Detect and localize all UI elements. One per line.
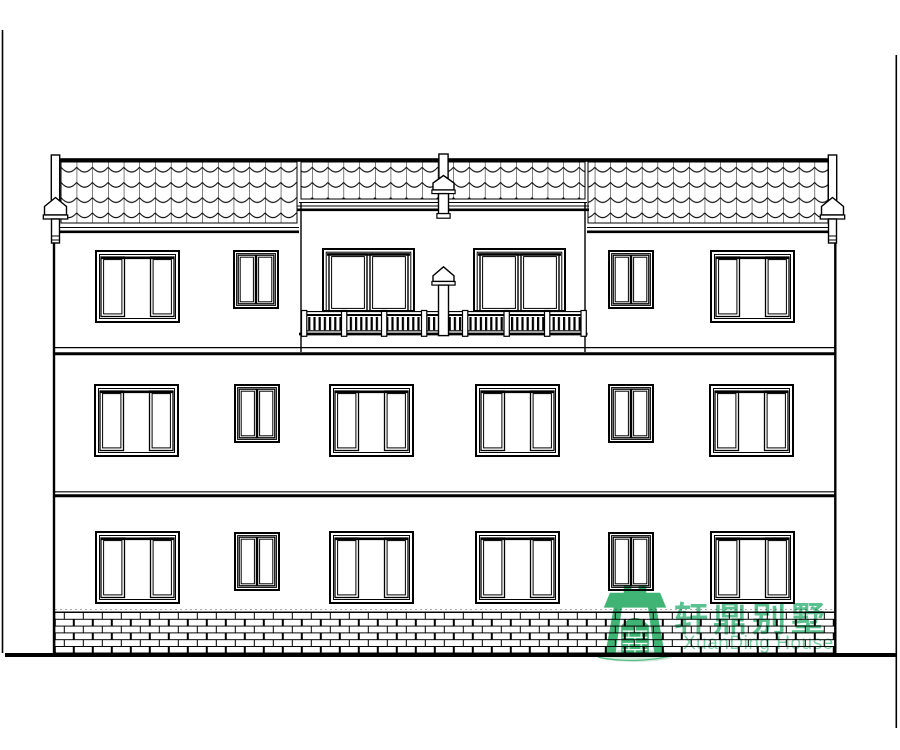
windows-floor-1 — [96, 532, 794, 603]
window-2f-right-small — [609, 385, 653, 442]
plinth-brick-hatch — [55, 612, 836, 653]
roof-tiles-left — [61, 162, 297, 223]
ground-line — [5, 653, 896, 657]
window-3f-right-large — [711, 251, 794, 322]
window-1f-center-right — [476, 532, 559, 603]
window-1f-left-large — [96, 532, 179, 603]
window-2f-left-small — [235, 385, 279, 442]
window-2f-right-large — [710, 385, 793, 456]
roof-tiles-right — [588, 162, 828, 223]
window-1f-left-small — [235, 533, 279, 590]
brick-plinth — [55, 610, 836, 654]
window-2f-center-right — [476, 385, 559, 456]
window-3f-right-small — [609, 251, 653, 308]
windows-floor-2 — [95, 385, 793, 456]
window-3f-left-small — [234, 251, 278, 308]
window-2f-center-left — [330, 385, 413, 456]
balcony-door-right — [474, 249, 565, 311]
elevation-drawing-canvas: 轩鼎别墅 XuanDing House — [0, 0, 900, 750]
window-1f-center-left — [330, 532, 413, 603]
window-1f-right-small — [609, 533, 653, 590]
window-3f-left-large — [96, 251, 179, 322]
balcony-door-left — [323, 249, 414, 311]
house-front-elevation-drawing — [0, 0, 900, 750]
window-1f-right-large — [711, 532, 794, 603]
window-2f-left-large — [95, 385, 178, 456]
